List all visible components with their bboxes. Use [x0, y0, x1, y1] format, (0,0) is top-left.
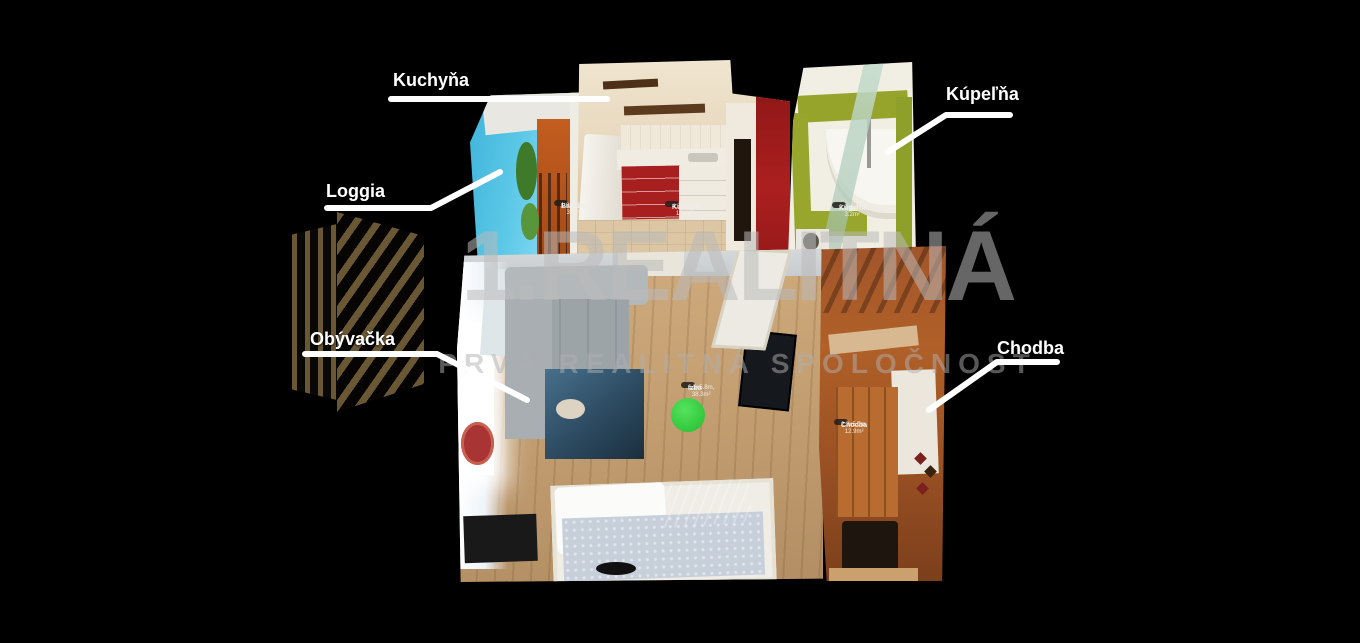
- label-kupelna: Kúpeľňa: [946, 84, 1019, 105]
- room-badge-izba: Izba 6.5x5.8m, 38.3m²: [681, 382, 695, 388]
- room-badge-kuchyna: Kuchyňa 4.3x4.2m, 12.4m²: [665, 201, 679, 207]
- red-blanket: [661, 479, 752, 528]
- room-badge-kupelna: Kúpeľňa 2.0x1.6m, 3.2m²: [832, 202, 846, 208]
- cat: [556, 399, 585, 419]
- room-badge-balkon: Balkón 1.0x3.3m, 3.3m²: [554, 200, 568, 206]
- hallway-shoes: [842, 521, 898, 571]
- kitchen-backsplash: [620, 125, 731, 151]
- kitchen-shelf: [602, 78, 658, 89]
- label-kuchyna: Kuchyňa: [393, 70, 469, 91]
- label-obyvacka: Obývačka: [310, 329, 395, 350]
- badge-room-dims: 6.5x5.8m, 38.3m²: [688, 385, 714, 399]
- watermark-subtitle: PRVÁ REALITNÁ SPOLOČNOSŤ: [430, 348, 1045, 380]
- badge-room-dims: 2.3x5.0m, 12.9m²: [841, 422, 867, 436]
- kitchen-sink: [688, 153, 718, 163]
- floorplan-image: 1.REALITNÁ PRVÁ REALITNÁ SPOLOČNOSŤ Balk…: [0, 0, 1360, 643]
- viewpoint-marker[interactable]: [671, 398, 705, 432]
- label-chodba: Chodba: [997, 338, 1064, 359]
- label-loggia: Loggia: [326, 181, 385, 202]
- hallway-floor: [829, 568, 918, 581]
- agency-building-logo: [292, 212, 424, 412]
- watermark-title: 1.REALITNÁ: [425, 216, 1050, 322]
- kitchen-shelf: [624, 104, 705, 116]
- logo-right-face: [337, 212, 424, 412]
- red-round-rug: [461, 422, 494, 465]
- logo-left-face: [292, 224, 337, 400]
- hallway-diamond-decor: [916, 482, 929, 495]
- loggia-plant: [516, 142, 536, 199]
- radiator: [464, 514, 539, 563]
- hallway-wardrobe: [836, 387, 898, 518]
- room-badge-chodba: Chodba 2.3x5.0m, 12.9m²: [834, 419, 848, 425]
